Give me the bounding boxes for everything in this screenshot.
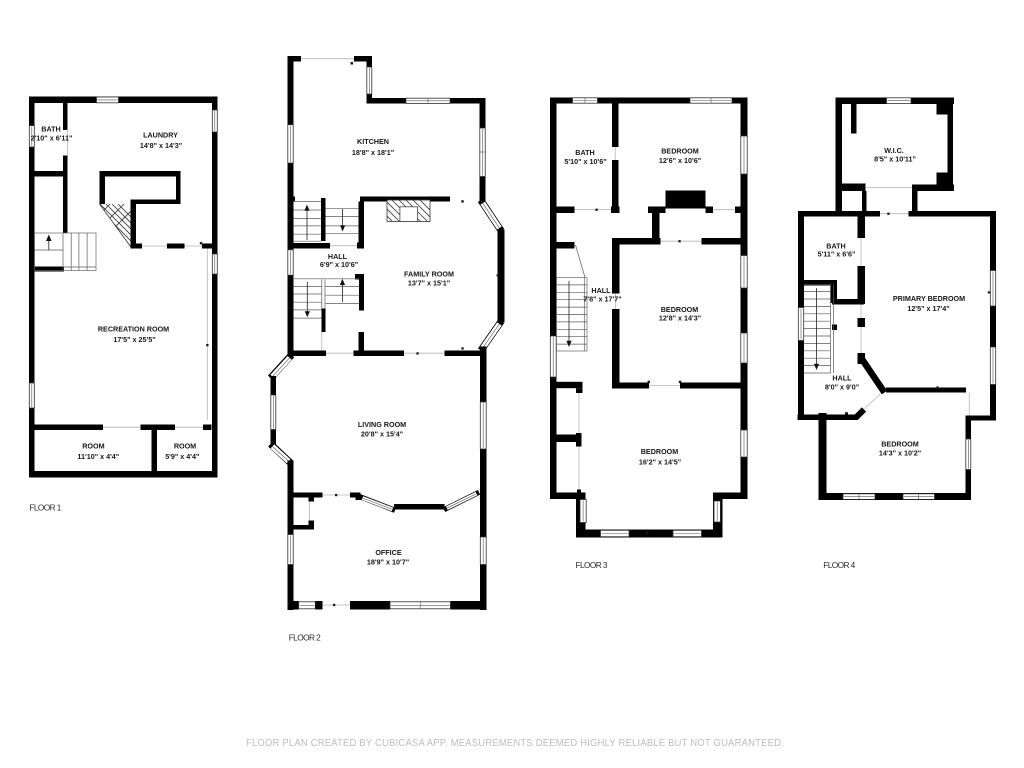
svg-text:RECREATION ROOM: RECREATION ROOM <box>98 325 169 334</box>
svg-text:14'3" x 10'2": 14'3" x 10'2" <box>879 449 921 458</box>
svg-text:LIVING ROOM: LIVING ROOM <box>358 420 406 429</box>
svg-text:16'2" x 14'5": 16'2" x 14'5" <box>639 458 681 467</box>
svg-text:8'5" x 10'11": 8'5" x 10'11" <box>874 154 916 163</box>
svg-text:KITCHEN: KITCHEN <box>357 137 389 146</box>
svg-text:12'6" x 10'6": 12'6" x 10'6" <box>659 156 701 165</box>
svg-text:6'9" x 10'6": 6'9" x 10'6" <box>320 260 358 269</box>
svg-text:20'8" x 15'4": 20'8" x 15'4" <box>361 430 403 439</box>
svg-text:FLOOR 1: FLOOR 1 <box>29 503 61 513</box>
svg-text:12'8" x 14'3": 12'8" x 14'3" <box>659 314 701 323</box>
svg-text:17'5" x 25'5": 17'5" x 25'5" <box>113 335 155 344</box>
svg-text:5'11" x 6'6": 5'11" x 6'6" <box>818 250 856 259</box>
svg-text:FLOOR 4: FLOOR 4 <box>823 560 855 570</box>
svg-text:BATH: BATH <box>41 125 60 134</box>
svg-text:ROOM: ROOM <box>82 442 104 451</box>
svg-text:BEDROOM: BEDROOM <box>661 147 699 156</box>
svg-text:ROOM: ROOM <box>174 442 196 451</box>
svg-text:PRIMARY BEDROOM: PRIMARY BEDROOM <box>893 294 965 303</box>
svg-text:5'9" x 4'4": 5'9" x 4'4" <box>165 452 199 461</box>
svg-text:13'7" x 15'1": 13'7" x 15'1" <box>408 278 450 287</box>
svg-text:BEDROOM: BEDROOM <box>881 440 919 449</box>
svg-text:12'5" x 17'4": 12'5" x 17'4" <box>907 304 949 313</box>
svg-text:5'10" x 10'6": 5'10" x 10'6" <box>564 157 606 166</box>
svg-text:OFFICE: OFFICE <box>375 548 402 557</box>
svg-text:14'8" x 14'3": 14'8" x 14'3" <box>140 141 182 150</box>
svg-text:BEDROOM: BEDROOM <box>641 447 679 456</box>
svg-text:BATH: BATH <box>575 148 594 157</box>
svg-text:LAUNDRY: LAUNDRY <box>143 131 178 140</box>
svg-text:18'8" x 18'1": 18'8" x 18'1" <box>352 148 394 157</box>
svg-text:FLOOR PLAN CREATED BY CUBICASA: FLOOR PLAN CREATED BY CUBICASA APP. MEAS… <box>246 737 784 749</box>
svg-text:FLOOR 2: FLOOR 2 <box>289 632 321 642</box>
svg-text:8'0" x 9'0": 8'0" x 9'0" <box>825 383 859 392</box>
svg-text:FLOOR 3: FLOOR 3 <box>576 560 608 570</box>
svg-text:2'10" x 6'11": 2'10" x 6'11" <box>31 134 73 143</box>
svg-text:7'8" x 17'7": 7'8" x 17'7" <box>583 295 621 304</box>
svg-text:18'9" x 10'7": 18'9" x 10'7" <box>367 557 409 566</box>
svg-text:HALL: HALL <box>832 374 852 383</box>
svg-text:11'10" x 4'4": 11'10" x 4'4" <box>77 452 119 461</box>
svg-text:FAMILY ROOM: FAMILY ROOM <box>404 270 454 279</box>
